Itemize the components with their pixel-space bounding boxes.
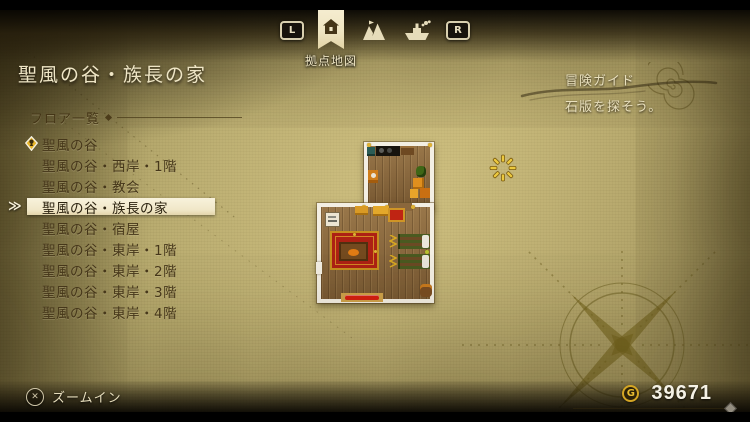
tab-region-map[interactable] (358, 20, 388, 41)
location-pin-icon (25, 136, 42, 151)
map-cursor-icon (486, 151, 520, 185)
floor-item-label: 聖風の谷・東岸・2階 (42, 260, 177, 280)
zoom-in-label: ズームイン (52, 387, 122, 406)
bed (398, 234, 430, 249)
currency-display: G 39671 (622, 382, 712, 405)
diamond-icon (105, 114, 112, 121)
floor-list-item[interactable]: ≫ 聖風の谷・東岸・4階 (8, 301, 242, 322)
ladder-decor (389, 235, 397, 249)
floor-list-header: フロア一覧 (30, 108, 100, 127)
floor-list-item[interactable]: ≫ 聖風の谷・宿屋 (8, 217, 242, 238)
header-rule (117, 117, 242, 118)
picture-frame (325, 212, 340, 227)
top-nav: L (0, 10, 750, 66)
l-shoulder-button[interactable]: L (280, 21, 304, 40)
pillow (422, 255, 429, 268)
selected-tab-label: 拠点地図 (305, 52, 357, 69)
floor-item-label: 聖風の谷・族長の家 (42, 197, 168, 217)
letterbox-bottom (0, 412, 750, 422)
selected-tab-banner (318, 5, 344, 49)
mountain-flag-icon (358, 20, 388, 41)
guide-message: 石版を探そう。 (565, 96, 662, 115)
floor-list-item[interactable]: ≫ 聖風の谷・東岸・1階 (8, 238, 242, 259)
table-chairs (420, 188, 430, 198)
lamp-dot (425, 250, 429, 254)
bench (355, 206, 368, 215)
floor-list-item[interactable]: ≫ 聖風の谷・西岸・1階 (8, 154, 242, 175)
floor-list-item[interactable]: ≫ 聖風の谷・東岸・3階 (8, 280, 242, 301)
floor-panel: フロア一覧 ≫ 聖風の谷 ≫ 聖風 (8, 108, 242, 322)
floor-item-label: 聖風の谷・東岸・1階 (42, 239, 177, 259)
floor-item-label: 聖風の谷 (42, 134, 98, 154)
tab-base-map[interactable] (318, 11, 344, 49)
map-screen: L (0, 0, 750, 422)
low-table (339, 242, 368, 261)
floor-list-header-row: フロア一覧 (30, 108, 242, 127)
page-title: 聖風の谷・族長の家 (18, 60, 207, 87)
floor-list-item[interactable]: ≫ 聖風の谷・東岸・2階 (8, 259, 242, 280)
adventure-guide: 冒険ガイド 石版を探そう。 (565, 70, 662, 115)
side-door (316, 262, 322, 274)
tab-voyage-map[interactable] (402, 20, 432, 41)
cross-button-icon: ✕ (26, 388, 44, 406)
floor-item-label: 聖風の谷・宿屋 (42, 218, 140, 238)
pot (420, 284, 432, 297)
bench (373, 206, 389, 216)
guide-title: 冒険ガイド (565, 70, 662, 89)
floor-plan-map (317, 142, 438, 303)
plant (416, 166, 426, 177)
shelf (401, 146, 414, 155)
doorpost-dot (411, 205, 415, 209)
pillow (422, 235, 429, 248)
selection-chevron-icon: ≫ (8, 200, 25, 213)
floor-item-label: 聖風の谷・教会 (42, 176, 140, 196)
floor-list-item[interactable]: ≫ 聖風の谷 (8, 133, 242, 154)
floor-item-label: 聖風の谷・西岸・1階 (42, 155, 177, 175)
doorpost-dot (428, 143, 432, 147)
r-shoulder-button[interactable]: R (446, 21, 470, 40)
table-chairs (410, 189, 418, 198)
floor-item-label: 聖風の谷・東岸・4階 (42, 302, 177, 322)
letterbox-top (0, 0, 750, 10)
kitchen-counter (376, 146, 400, 156)
floor-list-item[interactable]: ≫ 聖風の谷・族長の家 (8, 196, 242, 217)
small-red-table (388, 208, 405, 222)
ship-icon (402, 20, 432, 41)
floor-item-label: 聖風の谷・東岸・3階 (42, 281, 177, 301)
entrance-marker (345, 295, 379, 300)
floor-list: ≫ 聖風の谷 ≫ 聖風の谷・西岸・1階 ≫ (8, 133, 242, 322)
ladder-decor (389, 255, 397, 269)
floor-list-item[interactable]: ≫ 聖風の谷・教会 (8, 175, 242, 196)
gold-coin-icon: G (622, 385, 639, 402)
currency-rule (573, 408, 735, 409)
cabinet (367, 147, 375, 156)
bed (398, 254, 430, 269)
house-icon (323, 19, 339, 34)
mug (371, 173, 376, 178)
currency-amount: 39671 (651, 382, 712, 405)
zoom-in-hint[interactable]: ✕ ズームイン (26, 387, 122, 406)
carpet (330, 231, 379, 270)
